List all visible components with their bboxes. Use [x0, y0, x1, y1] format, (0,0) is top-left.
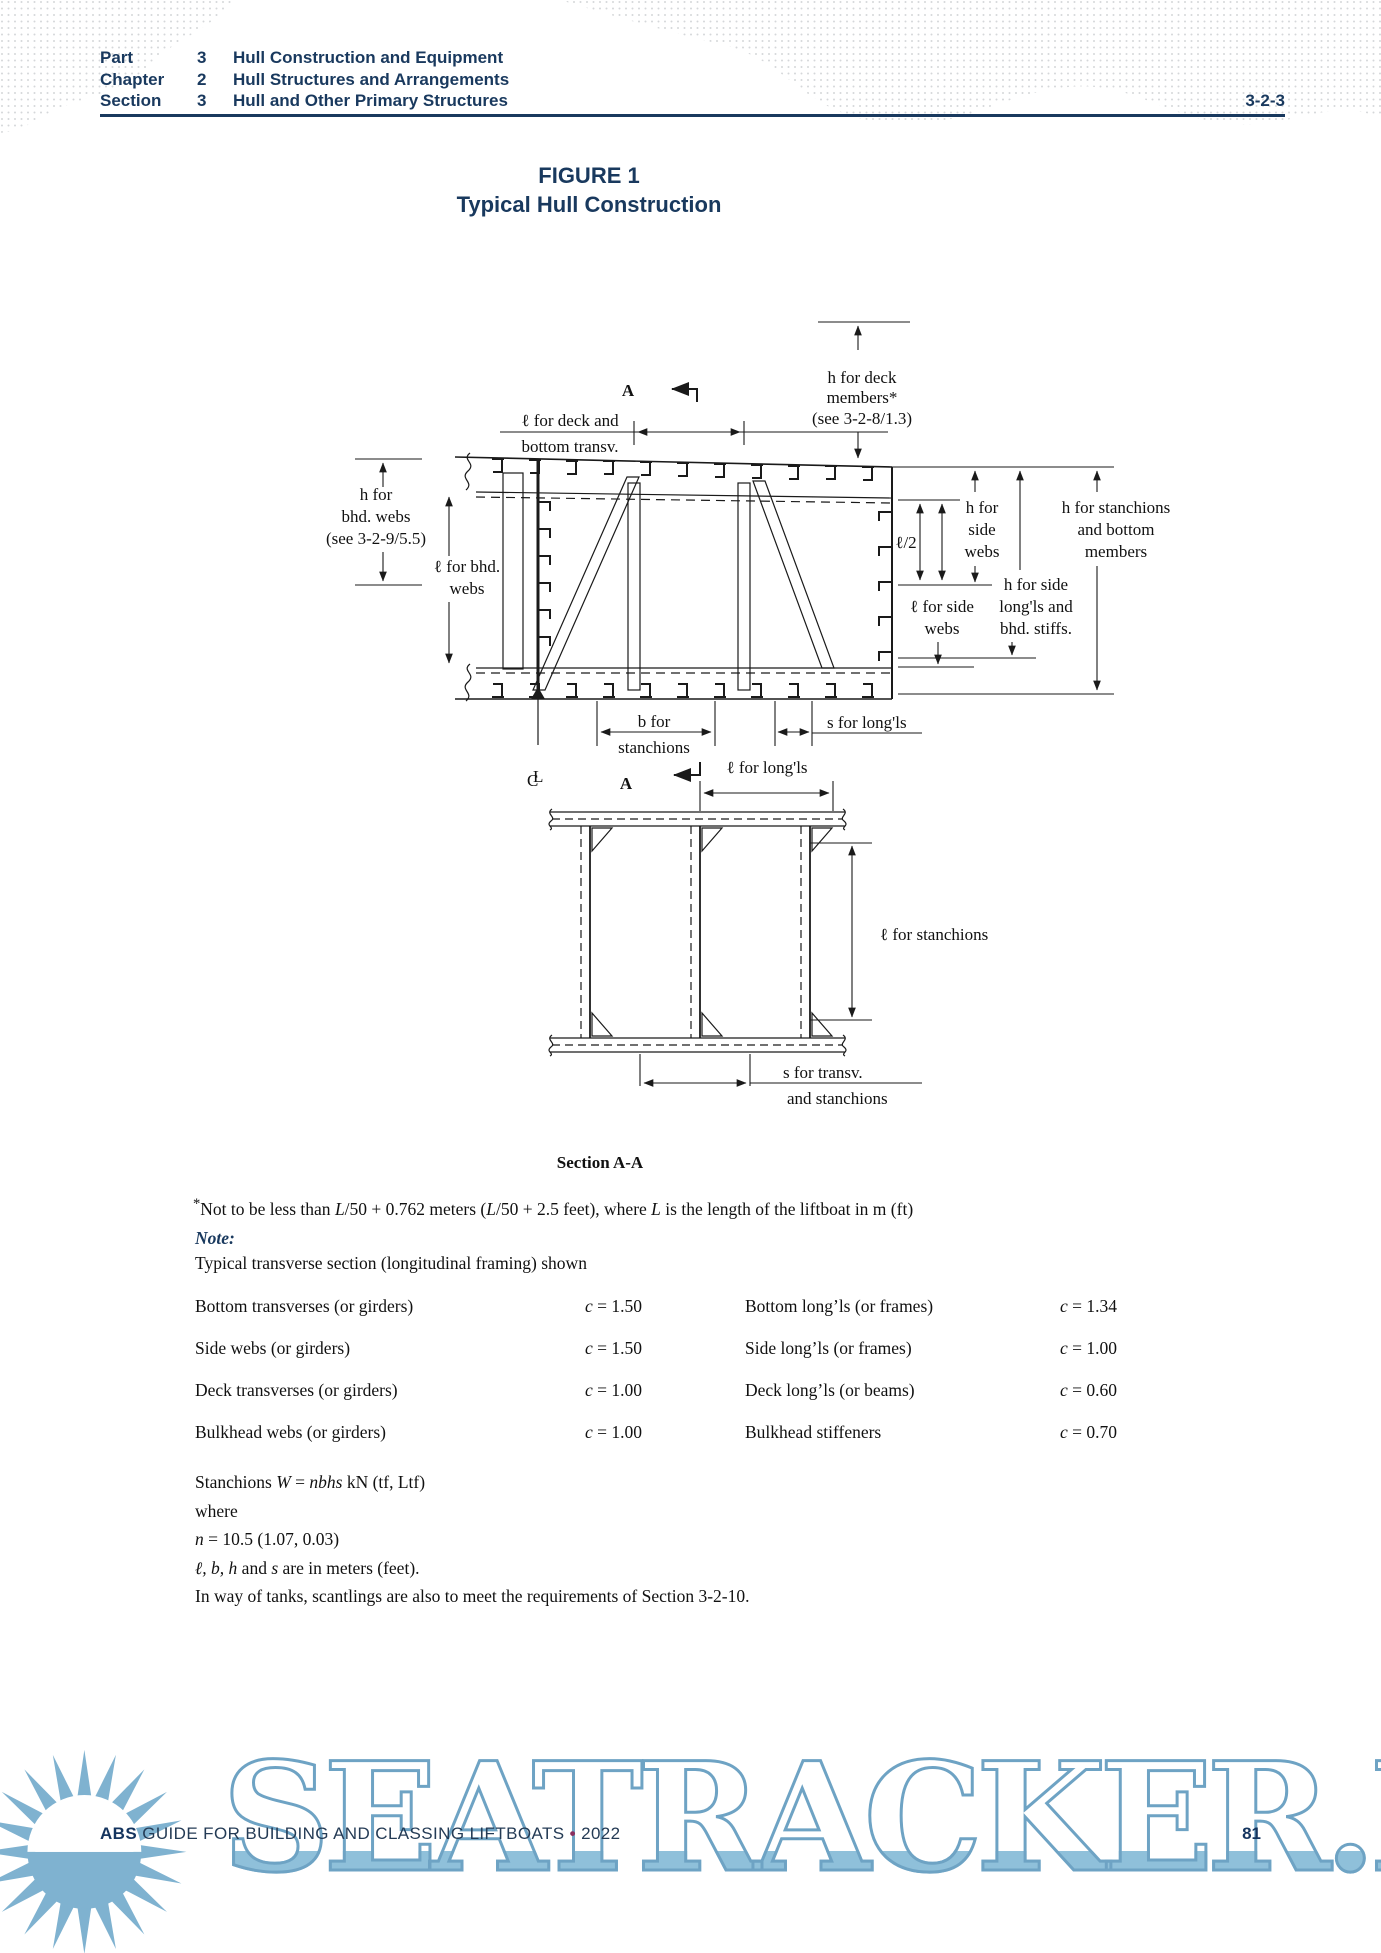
abs-brand: ABS	[100, 1824, 137, 1843]
footnote-seg2: /50 + 0.762 meters (	[345, 1199, 487, 1219]
side-shell-stiffener-clips	[879, 512, 891, 661]
header-chapter-label: Chapter	[100, 69, 197, 91]
header-chapter-title: Hull Structures and Arrangements	[233, 69, 1285, 91]
note-label: Note:	[195, 1228, 235, 1249]
where-label: where	[195, 1497, 750, 1526]
footnote-var-l2: L	[486, 1199, 496, 1219]
label-h-side-webs-3: webs	[965, 542, 1000, 561]
label-l-bhd-webs-2: webs	[450, 579, 485, 598]
stanchion-formula: Stanchions W = nbhs kN (tf, Ltf)	[195, 1468, 750, 1497]
deck-longitudinal-clips	[492, 459, 874, 480]
label-h-side-longls-1: h for side	[1004, 575, 1068, 594]
row4-left-value: c = 1.00	[585, 1418, 745, 1446]
label-b-stanchions-1: b for	[638, 712, 671, 731]
header-row-section: Section 3 Hull and Other Primary Structu…	[100, 90, 1285, 112]
section-marker-a-bottom: A	[620, 774, 633, 793]
label-b-stanchions-2: stanchions	[618, 738, 690, 757]
label-s-longls: s for long'ls	[827, 713, 907, 732]
hull-construction-diagram: A h for deck members* (see 3-2-8/1.3) ℓ …	[230, 240, 1290, 1190]
label-h-deck-members-2: members*	[827, 388, 898, 407]
section-aa-structure	[549, 809, 846, 1056]
footnote-var-l3: L	[651, 1199, 661, 1219]
watermark-text: SEATRACKER.RU	[222, 1736, 1381, 1901]
label-h-deck-members-1: h for deck	[828, 368, 897, 387]
header-row-chapter: Chapter 2 Hull Structures and Arrangemen…	[100, 69, 1285, 91]
label-h-stanchions-3: members	[1085, 542, 1147, 561]
section-code: 3-2-3	[1245, 90, 1285, 112]
figure-title-block: FIGURE 1 Typical Hull Construction	[0, 161, 1178, 219]
table-row: Side webs (or girders) c = 1.50 Side lon…	[195, 1334, 1200, 1362]
label-l-side-webs-2: webs	[925, 619, 960, 638]
footer: ABS GUIDE FOR BUILDING AND CLASSING LIFT…	[100, 1824, 621, 1844]
table-row: Bulkhead webs (or girders) c = 1.00 Bulk…	[195, 1418, 1200, 1446]
header-section-title: Hull and Other Primary Structures	[233, 90, 1285, 112]
label-h-bhd-webs-2: bhd. webs	[342, 507, 411, 526]
label-l-deck-transv-1: ℓ for deck and	[521, 411, 619, 430]
row3-left-label: Deck transverses (or girders)	[195, 1376, 585, 1404]
centerline-symbol-l: L	[533, 767, 543, 786]
figure-number: FIGURE 1	[0, 161, 1178, 190]
header-part-title: Hull Construction and Equipment	[233, 47, 1285, 69]
label-h-bhd-webs-3: (see 3-2-9/5.5)	[326, 529, 426, 548]
label-h-side-longls-3: bhd. stiffs.	[1000, 619, 1072, 638]
page-number: 81	[1242, 1824, 1261, 1844]
footer-year: 2022	[576, 1824, 621, 1843]
row2-right-value: c = 1.00	[1060, 1334, 1200, 1362]
note-text: Typical transverse section (longitudinal…	[195, 1253, 587, 1274]
figure-name: Typical Hull Construction	[0, 190, 1178, 219]
coefficient-table: Bottom transverses (or girders) c = 1.50…	[195, 1292, 1200, 1460]
figure-footnote: *Not to be less than L/50 + 0.762 meters…	[193, 1196, 1223, 1220]
stanchion-formula-block: Stanchions W = nbhs kN (tf, Ltf) where n…	[195, 1468, 750, 1611]
header-rule	[100, 114, 1285, 117]
table-row: Deck transverses (or girders) c = 1.00 D…	[195, 1376, 1200, 1404]
header-section-number: 3	[197, 90, 233, 112]
label-h-stanchions-1: h for stanchions	[1062, 498, 1171, 517]
label-l-longls: ℓ for long'ls	[726, 758, 807, 777]
label-s-transv-2: and stanchions	[787, 1089, 888, 1108]
sun-logo	[0, 1742, 222, 1953]
row2-left-label: Side webs (or girders)	[195, 1334, 585, 1362]
label-l-bhd-webs-1: ℓ for bhd.	[434, 557, 500, 576]
footer-text: GUIDE FOR BUILDING AND CLASSING LIFTBOAT…	[137, 1824, 570, 1843]
header-section-label: Section	[100, 90, 197, 112]
row1-right-value: c = 1.34	[1060, 1292, 1200, 1320]
bulkhead-stiffener-clips	[539, 502, 550, 646]
label-h-deck-members-3: (see 3-2-8/1.3)	[812, 409, 912, 428]
header-part-label: Part	[100, 47, 197, 69]
label-l-stanchions: ℓ for stanchions	[880, 925, 988, 944]
header-chapter-number: 2	[197, 69, 233, 91]
footnote-seg4: is the length of the liftboat in m (ft)	[661, 1199, 913, 1219]
section-aa-caption: Section A-A	[557, 1153, 644, 1172]
row2-left-value: c = 1.50	[585, 1334, 745, 1362]
section-aa-dimensions	[640, 843, 922, 1086]
row4-right-value: c = 0.70	[1060, 1418, 1200, 1446]
tanks-note: In way of tanks, scantlings are also to …	[195, 1582, 750, 1611]
label-l-deck-transv-2: bottom transv.	[521, 437, 618, 456]
header-part-number: 3	[197, 47, 233, 69]
doc-header: Part 3 Hull Construction and Equipment C…	[100, 47, 1285, 112]
row1-left-value: c = 1.50	[585, 1292, 745, 1320]
row1-right-label: Bottom long’ls (or frames)	[745, 1292, 1060, 1320]
table-row: Bottom transverses (or girders) c = 1.50…	[195, 1292, 1200, 1320]
bottom-longitudinal-clips	[492, 684, 874, 697]
label-l-side-webs-1: ℓ for side	[910, 597, 974, 616]
footnote-seg1: Not to be less than	[200, 1199, 335, 1219]
label-h-side-webs-1: h for	[966, 498, 999, 517]
section-marker-a-top: A	[622, 381, 635, 400]
upper-section-structure	[455, 453, 892, 745]
document-page: Part 3 Hull Construction and Equipment C…	[0, 0, 1381, 1953]
footnote-seg3: /50 + 2.5 feet), where	[496, 1199, 651, 1219]
label-h-side-longls-2: long'ls and	[999, 597, 1073, 616]
header-row-part: Part 3 Hull Construction and Equipment	[100, 47, 1285, 69]
row4-left-label: Bulkhead webs (or girders)	[195, 1418, 585, 1446]
label-l-over-2: ℓ/2	[895, 533, 916, 552]
vars-definition: ℓ, b, h and s are in meters (feet).	[195, 1554, 750, 1583]
row2-right-label: Side long’ls (or frames)	[745, 1334, 1060, 1362]
row4-right-label: Bulkhead stiffeners	[745, 1418, 1060, 1446]
label-s-transv-1: s for transv.	[783, 1063, 863, 1082]
label-h-bhd-webs-1: h for	[360, 485, 393, 504]
row1-left-label: Bottom transverses (or girders)	[195, 1292, 585, 1320]
row3-left-value: c = 1.00	[585, 1376, 745, 1404]
footnote-var-l1: L	[335, 1199, 345, 1219]
label-h-side-webs-2: side	[968, 520, 995, 539]
row3-right-label: Deck long’ls (or beams)	[745, 1376, 1060, 1404]
label-h-stanchions-2: and bottom	[1078, 520, 1155, 539]
n-definition: n = 10.5 (1.07, 0.03)	[195, 1525, 750, 1554]
row3-right-value: c = 0.60	[1060, 1376, 1200, 1404]
